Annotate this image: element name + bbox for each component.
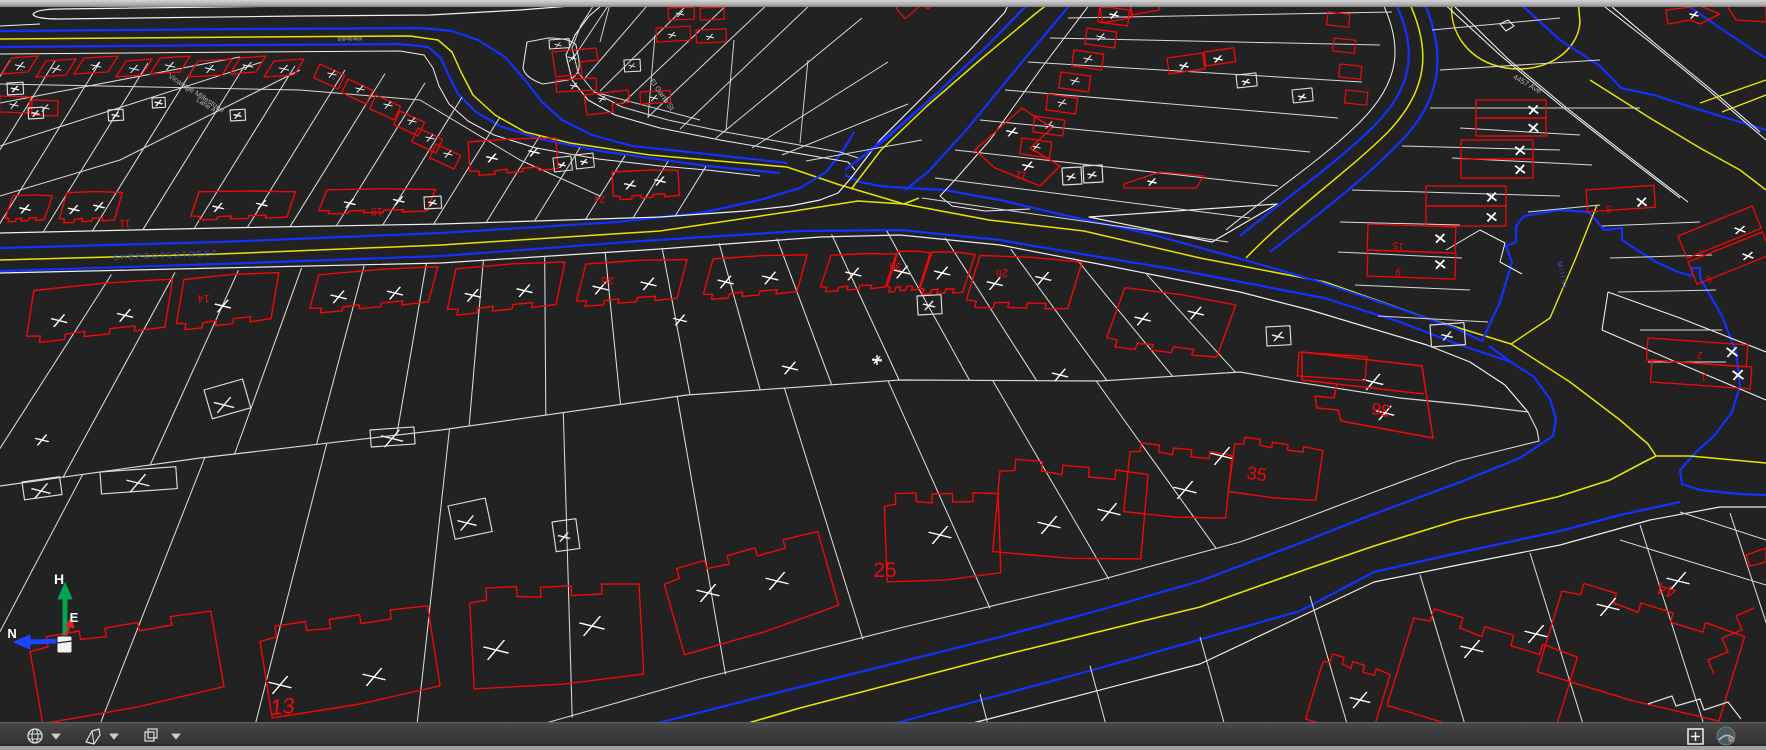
svg-text:26: 26 [996,267,1008,279]
svg-text:E: E [70,610,79,625]
svg-text:25: 25 [873,559,896,582]
svg-text:11: 11 [119,217,130,229]
svg-text:N: N [7,626,16,641]
svg-text:35: 35 [1246,463,1269,486]
svg-text:M: M [1728,737,1734,744]
svg-text:13: 13 [269,693,297,721]
svg-text:19: 19 [371,205,383,217]
svg-text:36: 36 [1370,398,1392,420]
svg-text:11: 11 [1015,168,1028,182]
svg-text:24: 24 [593,192,605,204]
svg-text:H: H [54,571,64,587]
svg-text:14: 14 [197,292,209,304]
svg-text:26: 26 [602,274,614,286]
svg-text:36: 36 [889,260,901,272]
